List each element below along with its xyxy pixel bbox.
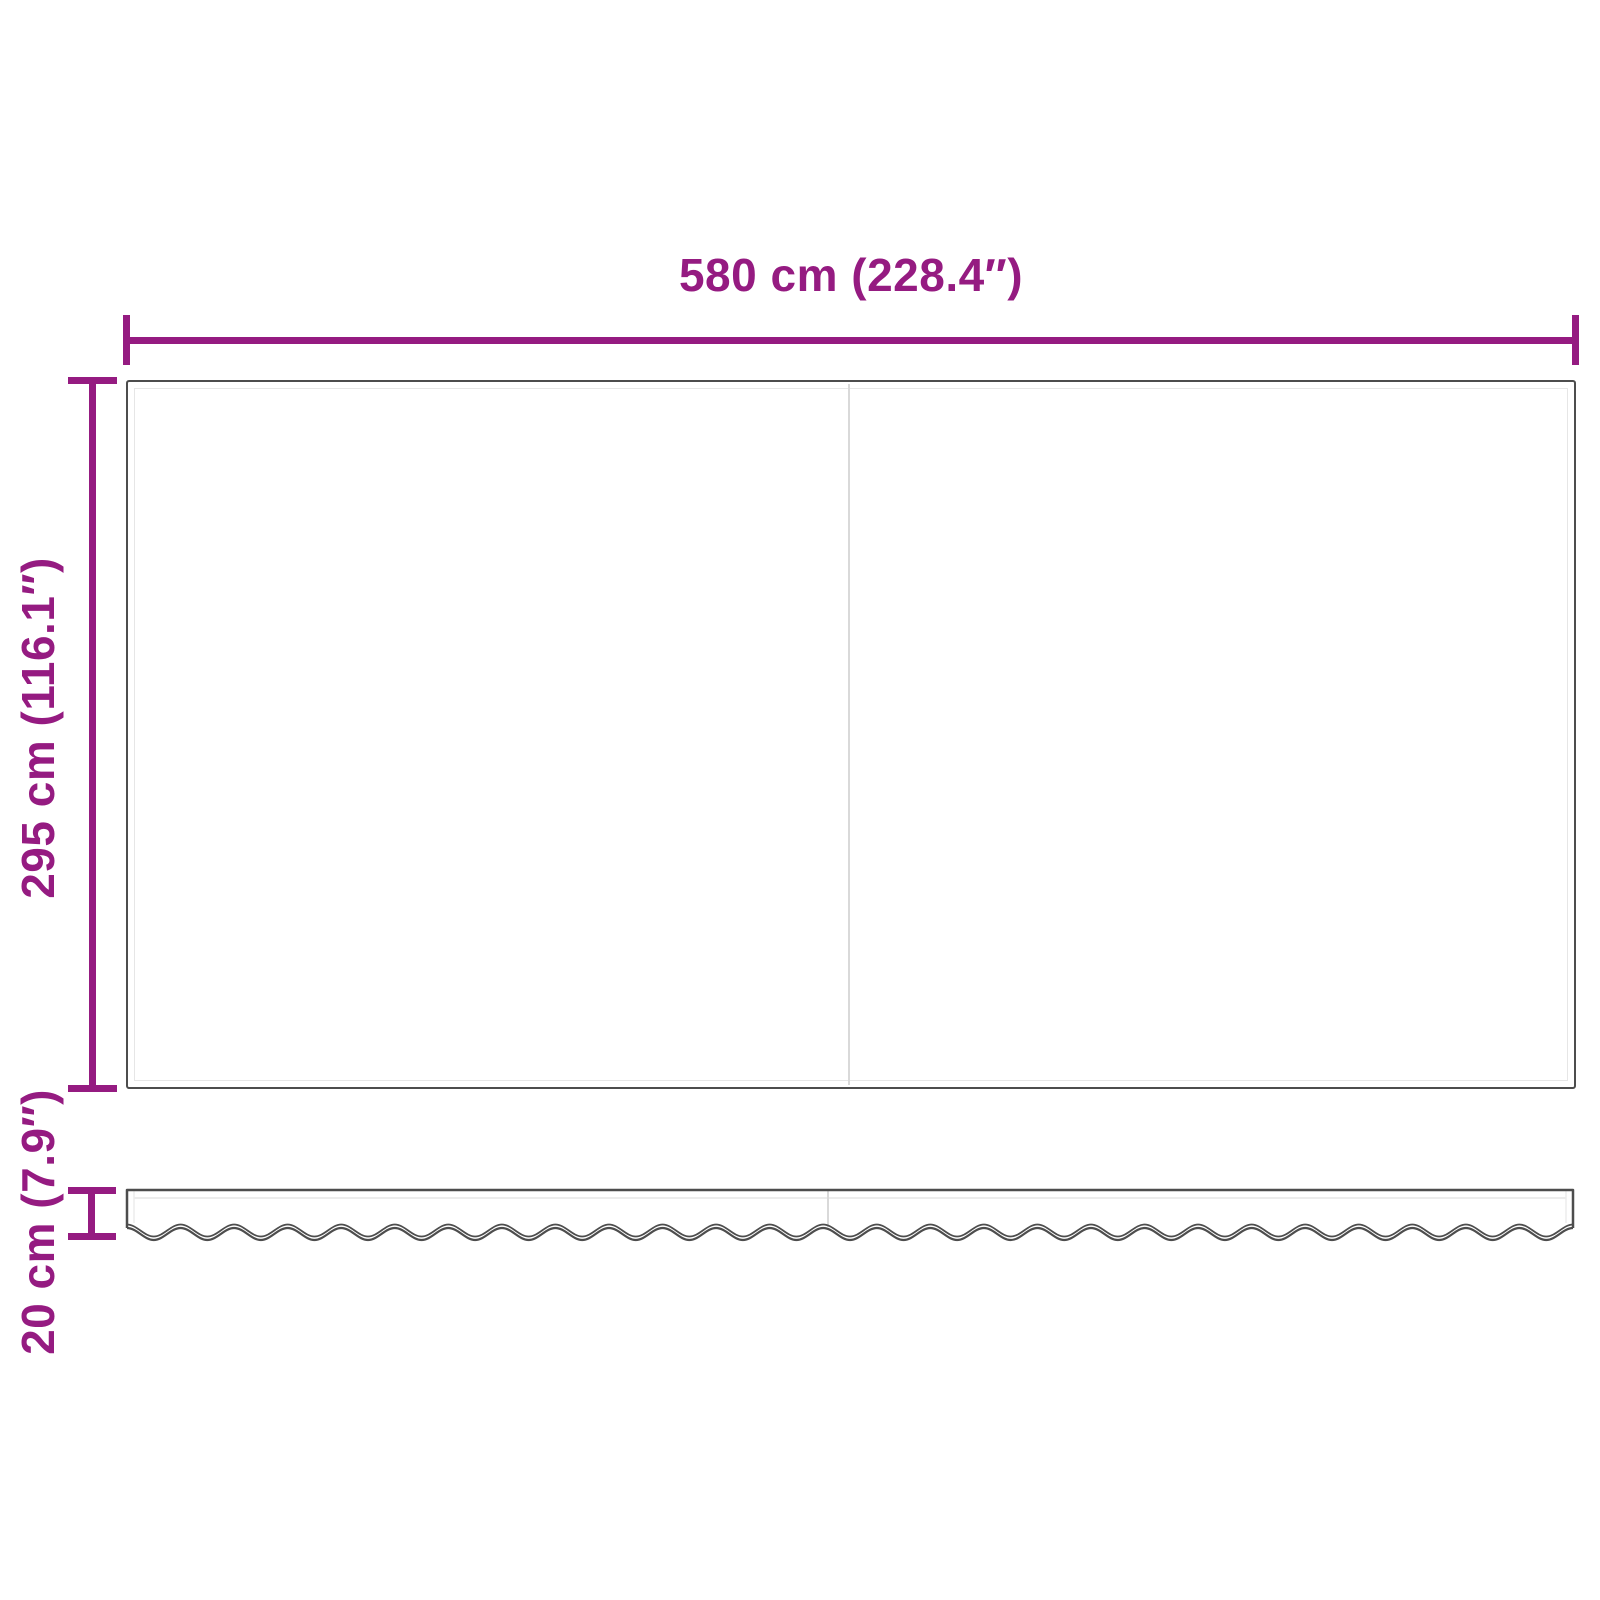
valance-height-dimension-label: 20 cm (7.9″): [15, 1089, 61, 1355]
height-dimension-label: 295 cm (116.1″): [15, 557, 61, 899]
center-seam-line: [848, 384, 850, 1085]
fabric-inner-stitch-line: [134, 388, 1568, 1081]
width-dimension-end-tick-left: [123, 315, 130, 365]
width-dimension-end-tick-right: [1572, 315, 1579, 365]
valance-wave-lower-line: [127, 1228, 1573, 1240]
awning-fabric-panel: [126, 380, 1576, 1089]
valance-outline: [127, 1190, 1573, 1228]
height-dimension-line: [89, 377, 96, 1092]
dimension-diagram: 580 cm (228.4″) 295 cm (116.1″) 20 cm (7…: [0, 0, 1600, 1600]
width-dimension-label: 580 cm (228.4″): [126, 252, 1576, 298]
valance-wave-upper-line: [127, 1225, 1573, 1237]
height-dimension-end-tick-top: [68, 377, 117, 384]
valance-dimension-end-tick-top: [68, 1187, 116, 1194]
width-dimension-line: [123, 337, 1579, 344]
wavy-valance-strip: [125, 1185, 1575, 1255]
height-dimension-end-tick-bottom: [68, 1085, 117, 1092]
valance-dimension-end-tick-bottom: [68, 1233, 116, 1240]
